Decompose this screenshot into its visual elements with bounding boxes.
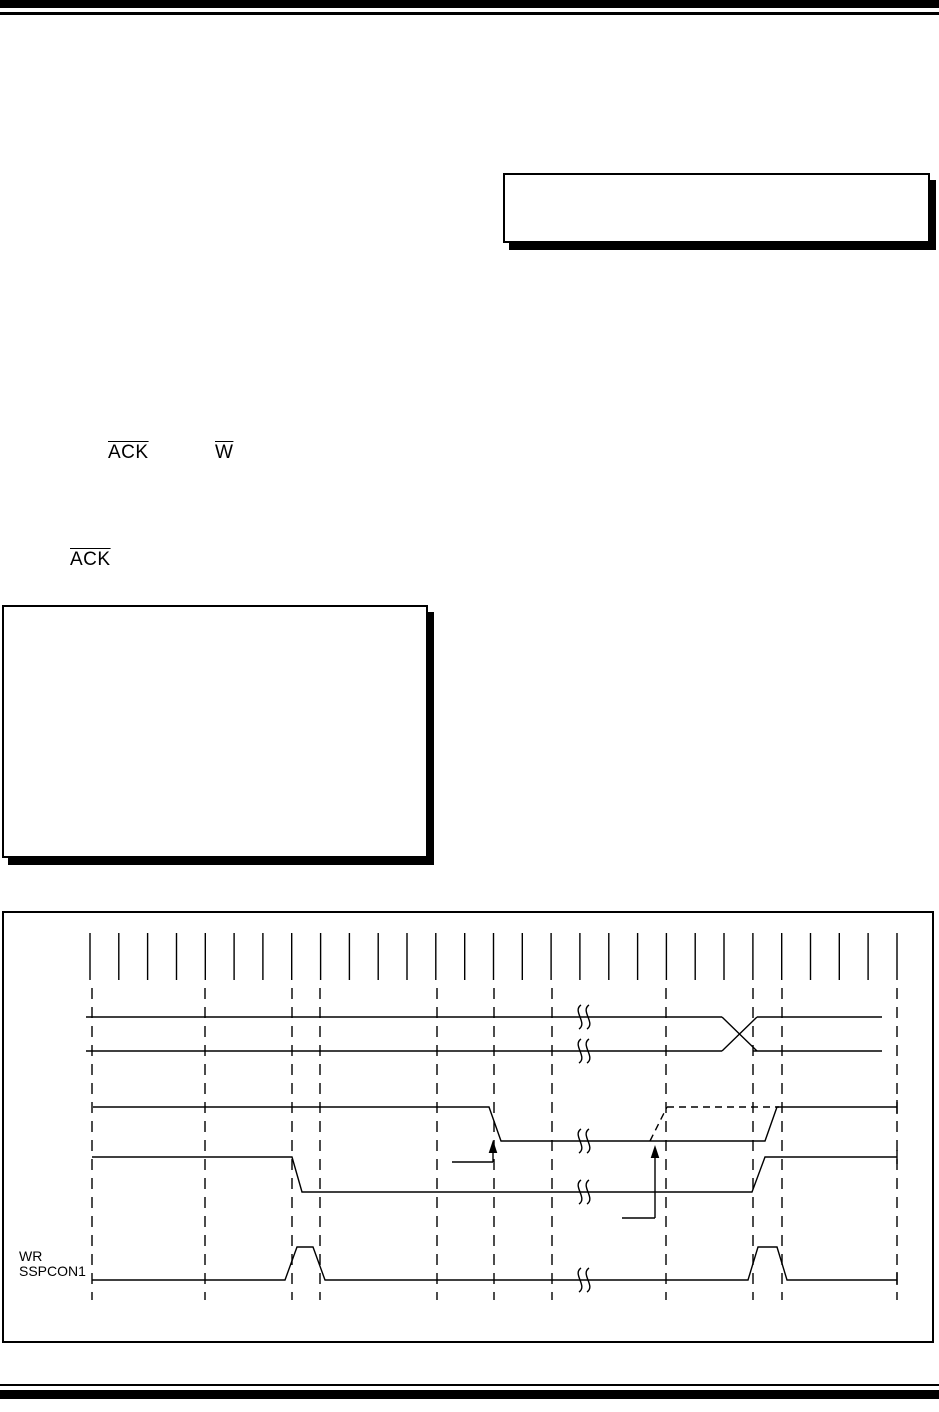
datasheet-page: ACK W ACK [0,0,939,1412]
signal-3-dashed-rise [650,1107,667,1141]
annotation-arrow-1 [452,1140,497,1162]
signal-3-waveform [93,1100,897,1141]
arrow-1-head [489,1140,498,1153]
footer-rule-thin [0,1384,939,1386]
wr-sspcon1-waveform [92,1247,897,1285]
wr-sspcon1-label-line1: WR [19,1249,86,1264]
wr-sspcon1-label-line2: SSPCON1 [19,1264,86,1279]
footer-rule-thick [0,1390,939,1399]
bus-crossover [722,1017,757,1051]
arrow-2-head [651,1145,660,1158]
wr-sspcon1-label: WR SSPCON1 [19,1249,86,1279]
figure-generated-grid [90,933,897,1300]
annotation-arrow-2 [622,1145,659,1218]
timing-figure-svg [0,0,939,1412]
figure-border [3,912,933,1342]
